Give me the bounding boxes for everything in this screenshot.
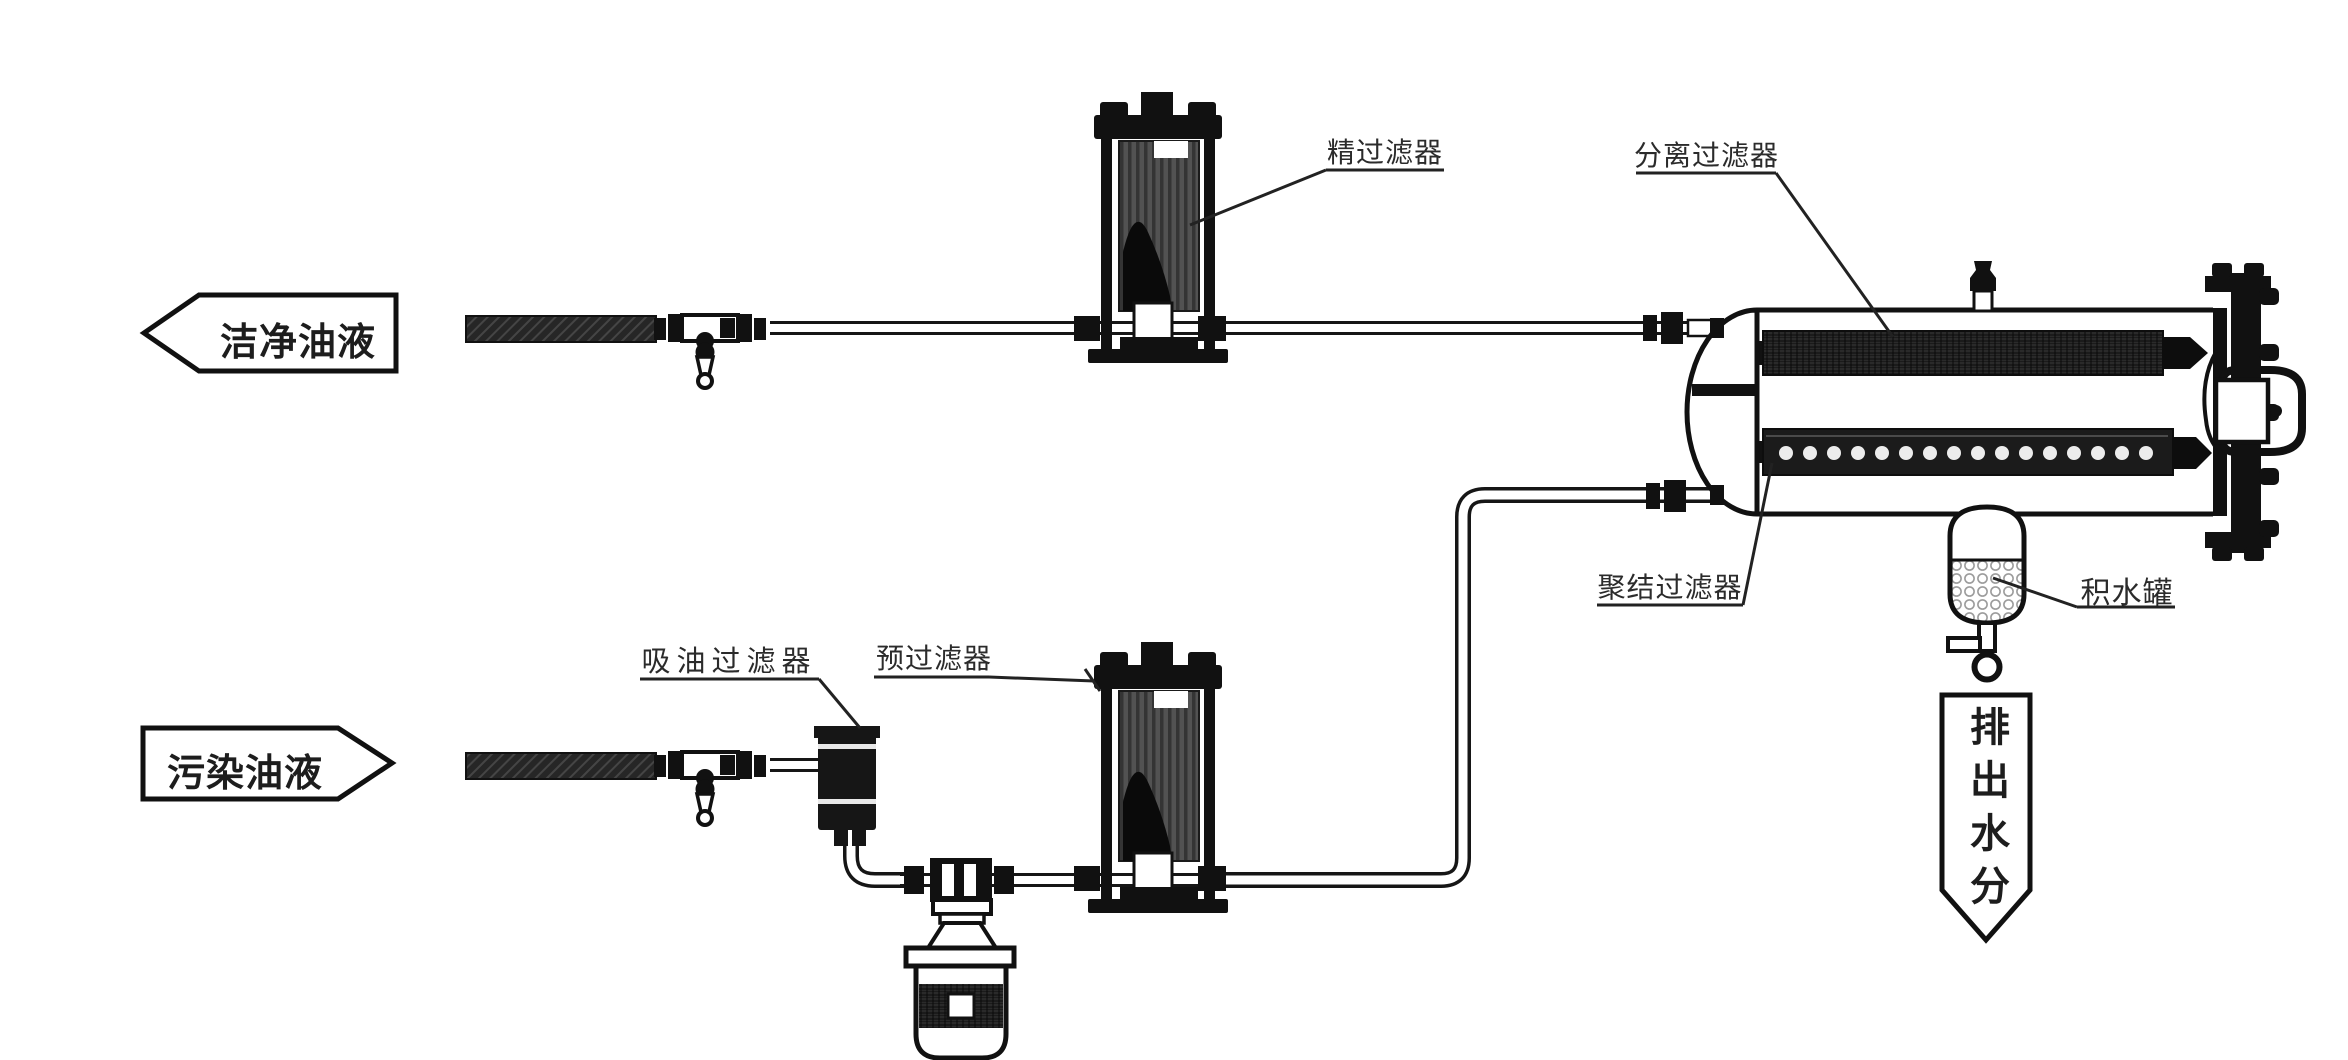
coalescer-element (1757, 429, 2212, 475)
ball-valve-clean-line (654, 314, 766, 388)
vessel-left-dome (1687, 310, 1757, 514)
water-collection-tank (1948, 507, 2024, 680)
fine-filter-label: 精过滤器 (1324, 131, 1446, 171)
contaminated-oil-label: 污染油液 (152, 742, 338, 797)
suction-filter-label: 吸油过滤器 (636, 638, 822, 680)
water-tank-label: 积水罐 (2078, 568, 2176, 612)
schematic-canvas: 精过滤器 分离过滤器 聚结过滤器 积水罐 吸油过滤器 预过滤器 洁净油液 污染油… (0, 0, 2348, 1060)
fine-filter (1074, 92, 1228, 363)
clean-oil-label: 洁净油液 (200, 311, 396, 366)
pre-filter-label: 预过滤器 (876, 637, 990, 677)
pre-filter (1074, 642, 1228, 913)
vent-valve (1970, 261, 1996, 311)
separation-filter-label: 分离过滤器 (1634, 134, 1778, 174)
ball-valve-dirty-line (654, 751, 766, 825)
pump-motor-unit (904, 858, 1014, 1058)
riser-pipe (1226, 480, 1714, 880)
drain-valve (1948, 623, 2000, 680)
suction-filter (814, 726, 880, 846)
discharge-water-label: 排出水分 (1966, 706, 2006, 918)
hose-dirty-line (466, 753, 656, 779)
hose-clean-line (466, 316, 656, 342)
coalescing-filter-label: 聚结过滤器 (1596, 566, 1744, 606)
separator-element (1757, 331, 2208, 375)
